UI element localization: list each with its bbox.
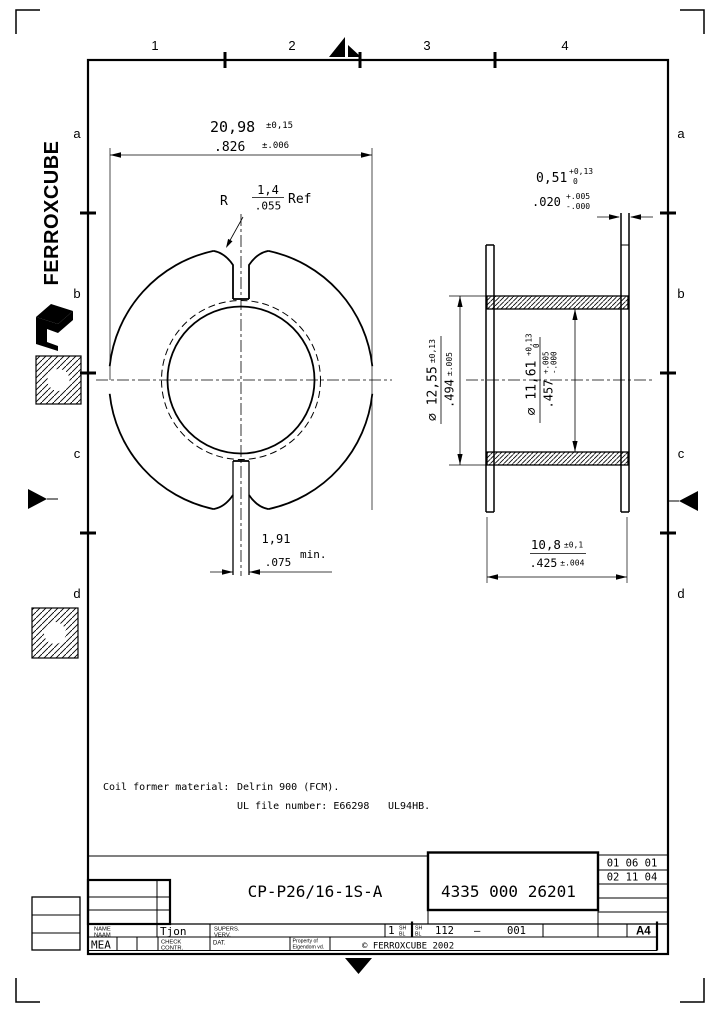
- outer-dia-mm: ⌀ 12,55±0,13: [426, 339, 441, 421]
- flange-mm-tol-lo: 0: [573, 177, 578, 186]
- corner-mark-bottom-left: [16, 978, 40, 1002]
- arrowhead-icon: [222, 569, 233, 574]
- feed-mark-upper-icon: [36, 356, 81, 404]
- mea-label: MEA: [91, 939, 111, 952]
- slot-min-suffix: min.: [300, 548, 327, 561]
- slot-mm: 1,91: [262, 532, 291, 546]
- arrowhead-icon: [457, 454, 462, 465]
- part-number: 4335 000 26201: [441, 882, 576, 901]
- bottom-slot-funnel: [214, 495, 233, 509]
- centering-mark-top-icon: [348, 45, 361, 57]
- material-value: Delrin 900 (FCM).: [237, 782, 339, 793]
- zone-row-label: d: [73, 586, 80, 601]
- bottom-slot-funnel: [249, 495, 268, 509]
- revision-date: 02 11 04: [607, 872, 658, 884]
- drawing-code-b: 001: [507, 925, 526, 937]
- drawing-sheet: 1 2 3 4 a b c d a b c d FERROXCUBE: [0, 0, 720, 1012]
- flange-inch: .020: [532, 195, 561, 209]
- arrowhead-icon: [226, 239, 233, 248]
- section-view: 0,51 +0,13 0 .020 +.005 -.000 ⌀ 12,55±0,…: [426, 167, 654, 583]
- material-label: Coil former material:: [103, 782, 229, 793]
- arrowhead-icon: [487, 574, 498, 579]
- bl-label: BL: [399, 932, 405, 938]
- zone-row-label: a: [73, 126, 81, 141]
- dim-width-inch-tol: ±.006: [262, 141, 289, 151]
- arrowhead-icon: [110, 152, 121, 157]
- top-slot-wall: [249, 251, 268, 299]
- inner-dia-mm-tol-lo: 0: [532, 343, 541, 348]
- dim-width-mm: 20,98: [210, 118, 255, 136]
- bl-label: BL: [415, 932, 421, 938]
- zone-row-label: c: [74, 446, 81, 461]
- margin-table: [32, 897, 80, 950]
- property-label2: Eigendom vd.: [293, 945, 325, 951]
- revision-date: 01 06 01: [607, 858, 658, 870]
- flange-inch-tol-lo: -.000: [566, 202, 590, 211]
- title-block: CP-P26/16-1S-A 4335 000 26201 01 06 01 0…: [88, 853, 668, 952]
- verv-label: VERV.: [214, 933, 231, 939]
- radius-suffix: Ref: [288, 192, 311, 207]
- ul-file-number: UL file number: E66298: [237, 801, 369, 812]
- radius-inch: .055: [255, 200, 282, 213]
- dim-outer-diameter: ⌀ 12,55±0,13 .494±.005: [426, 296, 488, 465]
- corner-mark-top-right: [680, 10, 704, 34]
- centering-mark-right-icon: [679, 491, 698, 511]
- zone-col-label: 4: [561, 38, 568, 53]
- dim-width-mm-tol: ±0,15: [266, 121, 293, 131]
- dat-label: DAT.: [213, 941, 226, 947]
- copyright: © FERROXCUBE 2002: [362, 942, 454, 952]
- radius-prefix: R: [220, 194, 228, 209]
- margin-column: FERROXCUBE: [32, 140, 81, 950]
- inner-dia-inch: .457: [542, 380, 556, 409]
- outline-arc: [268, 394, 372, 509]
- name-value: Tjon: [160, 925, 187, 938]
- outline-arc: [110, 251, 214, 366]
- revision-table: [88, 880, 170, 924]
- arrowhead-icon: [457, 296, 462, 307]
- tube-wall-section-top: [487, 296, 628, 309]
- front-view: 20,98 ±0,15 .826 ±.006 R 1,4 .055 Ref 1,…: [96, 118, 392, 576]
- ul-rating: UL94HB.: [388, 801, 430, 812]
- sheet-frame: 1 2 3 4 a b c d a b c d: [16, 10, 704, 1002]
- outline-arc: [110, 394, 214, 509]
- part-name: CP-P26/16-1S-A: [248, 882, 383, 901]
- centering-mark-top-icon: [329, 37, 345, 57]
- height-inch: .425±.004: [530, 556, 585, 570]
- arrowhead-icon: [361, 152, 372, 157]
- inner-dia-mm: ⌀ 11,61: [525, 361, 540, 416]
- dim-slot-width: 1,91 .075 min.: [210, 532, 332, 575]
- arrowhead-icon: [572, 309, 577, 320]
- inner-dia-inch-tol-lo: -.000: [550, 351, 559, 374]
- ferroxcube-cube-icon: [36, 304, 73, 351]
- zone-row-label: b: [73, 286, 80, 301]
- outer-dia-inch: .494±.005: [443, 352, 457, 408]
- flange-inch-tol-hi: +.005: [566, 192, 590, 201]
- zone-row-label: b: [677, 286, 684, 301]
- zone-row-label: d: [677, 586, 684, 601]
- dim-flange-thickness: 0,51 +0,13 0 .020 +.005 -.000: [532, 167, 653, 220]
- zone-col-label: 1: [151, 38, 158, 53]
- dim-radius-ref: R 1,4 .055 Ref: [220, 183, 311, 248]
- notes: Coil former material: Delrin 900 (FCM). …: [103, 782, 430, 812]
- slot-inch: .075: [265, 556, 292, 569]
- radius-mm: 1,4: [257, 183, 279, 197]
- outline-arc: [268, 251, 372, 366]
- arrowhead-icon: [572, 441, 577, 452]
- corner-mark-bottom-right: [680, 978, 704, 1002]
- flange-mm: 0,51: [536, 171, 567, 186]
- tube-wall-section-bottom: [487, 452, 628, 465]
- zone-col-label: 2: [288, 38, 295, 53]
- zone-row-label: c: [678, 446, 685, 461]
- arrowhead-icon: [616, 574, 627, 579]
- height-mm: 10,8±0,1: [531, 537, 584, 552]
- sheet-number: 1: [388, 924, 395, 937]
- zone-col-label: 3: [423, 38, 430, 53]
- arrowhead-icon: [630, 214, 641, 219]
- contr-label: CONTR.: [161, 946, 184, 952]
- drawing-code-a: 112: [435, 925, 454, 937]
- centering-mark-bottom-icon: [345, 958, 372, 974]
- corner-mark-top-left: [16, 10, 40, 34]
- feed-mark-lower-icon: [32, 608, 78, 658]
- arrowhead-icon: [609, 214, 620, 219]
- flange-mm-tol-hi: +0,13: [569, 167, 593, 176]
- sheet-format: A4: [636, 926, 651, 938]
- ferroxcube-logo-text: FERROXCUBE: [41, 140, 63, 285]
- dim-height: 10,8±0,1 .425±.004: [487, 517, 627, 583]
- dim-inner-diameter: ⌀ 11,61 +0,13 0 .457 +.005 -.000: [525, 309, 578, 452]
- arrowhead-icon: [249, 569, 260, 574]
- zone-row-label: a: [677, 126, 685, 141]
- centering-mark-left-icon: [28, 489, 47, 509]
- dim-width-inch: .826: [214, 140, 245, 155]
- drawing-code-dash: –: [474, 925, 481, 937]
- top-slot-wall: [214, 251, 233, 299]
